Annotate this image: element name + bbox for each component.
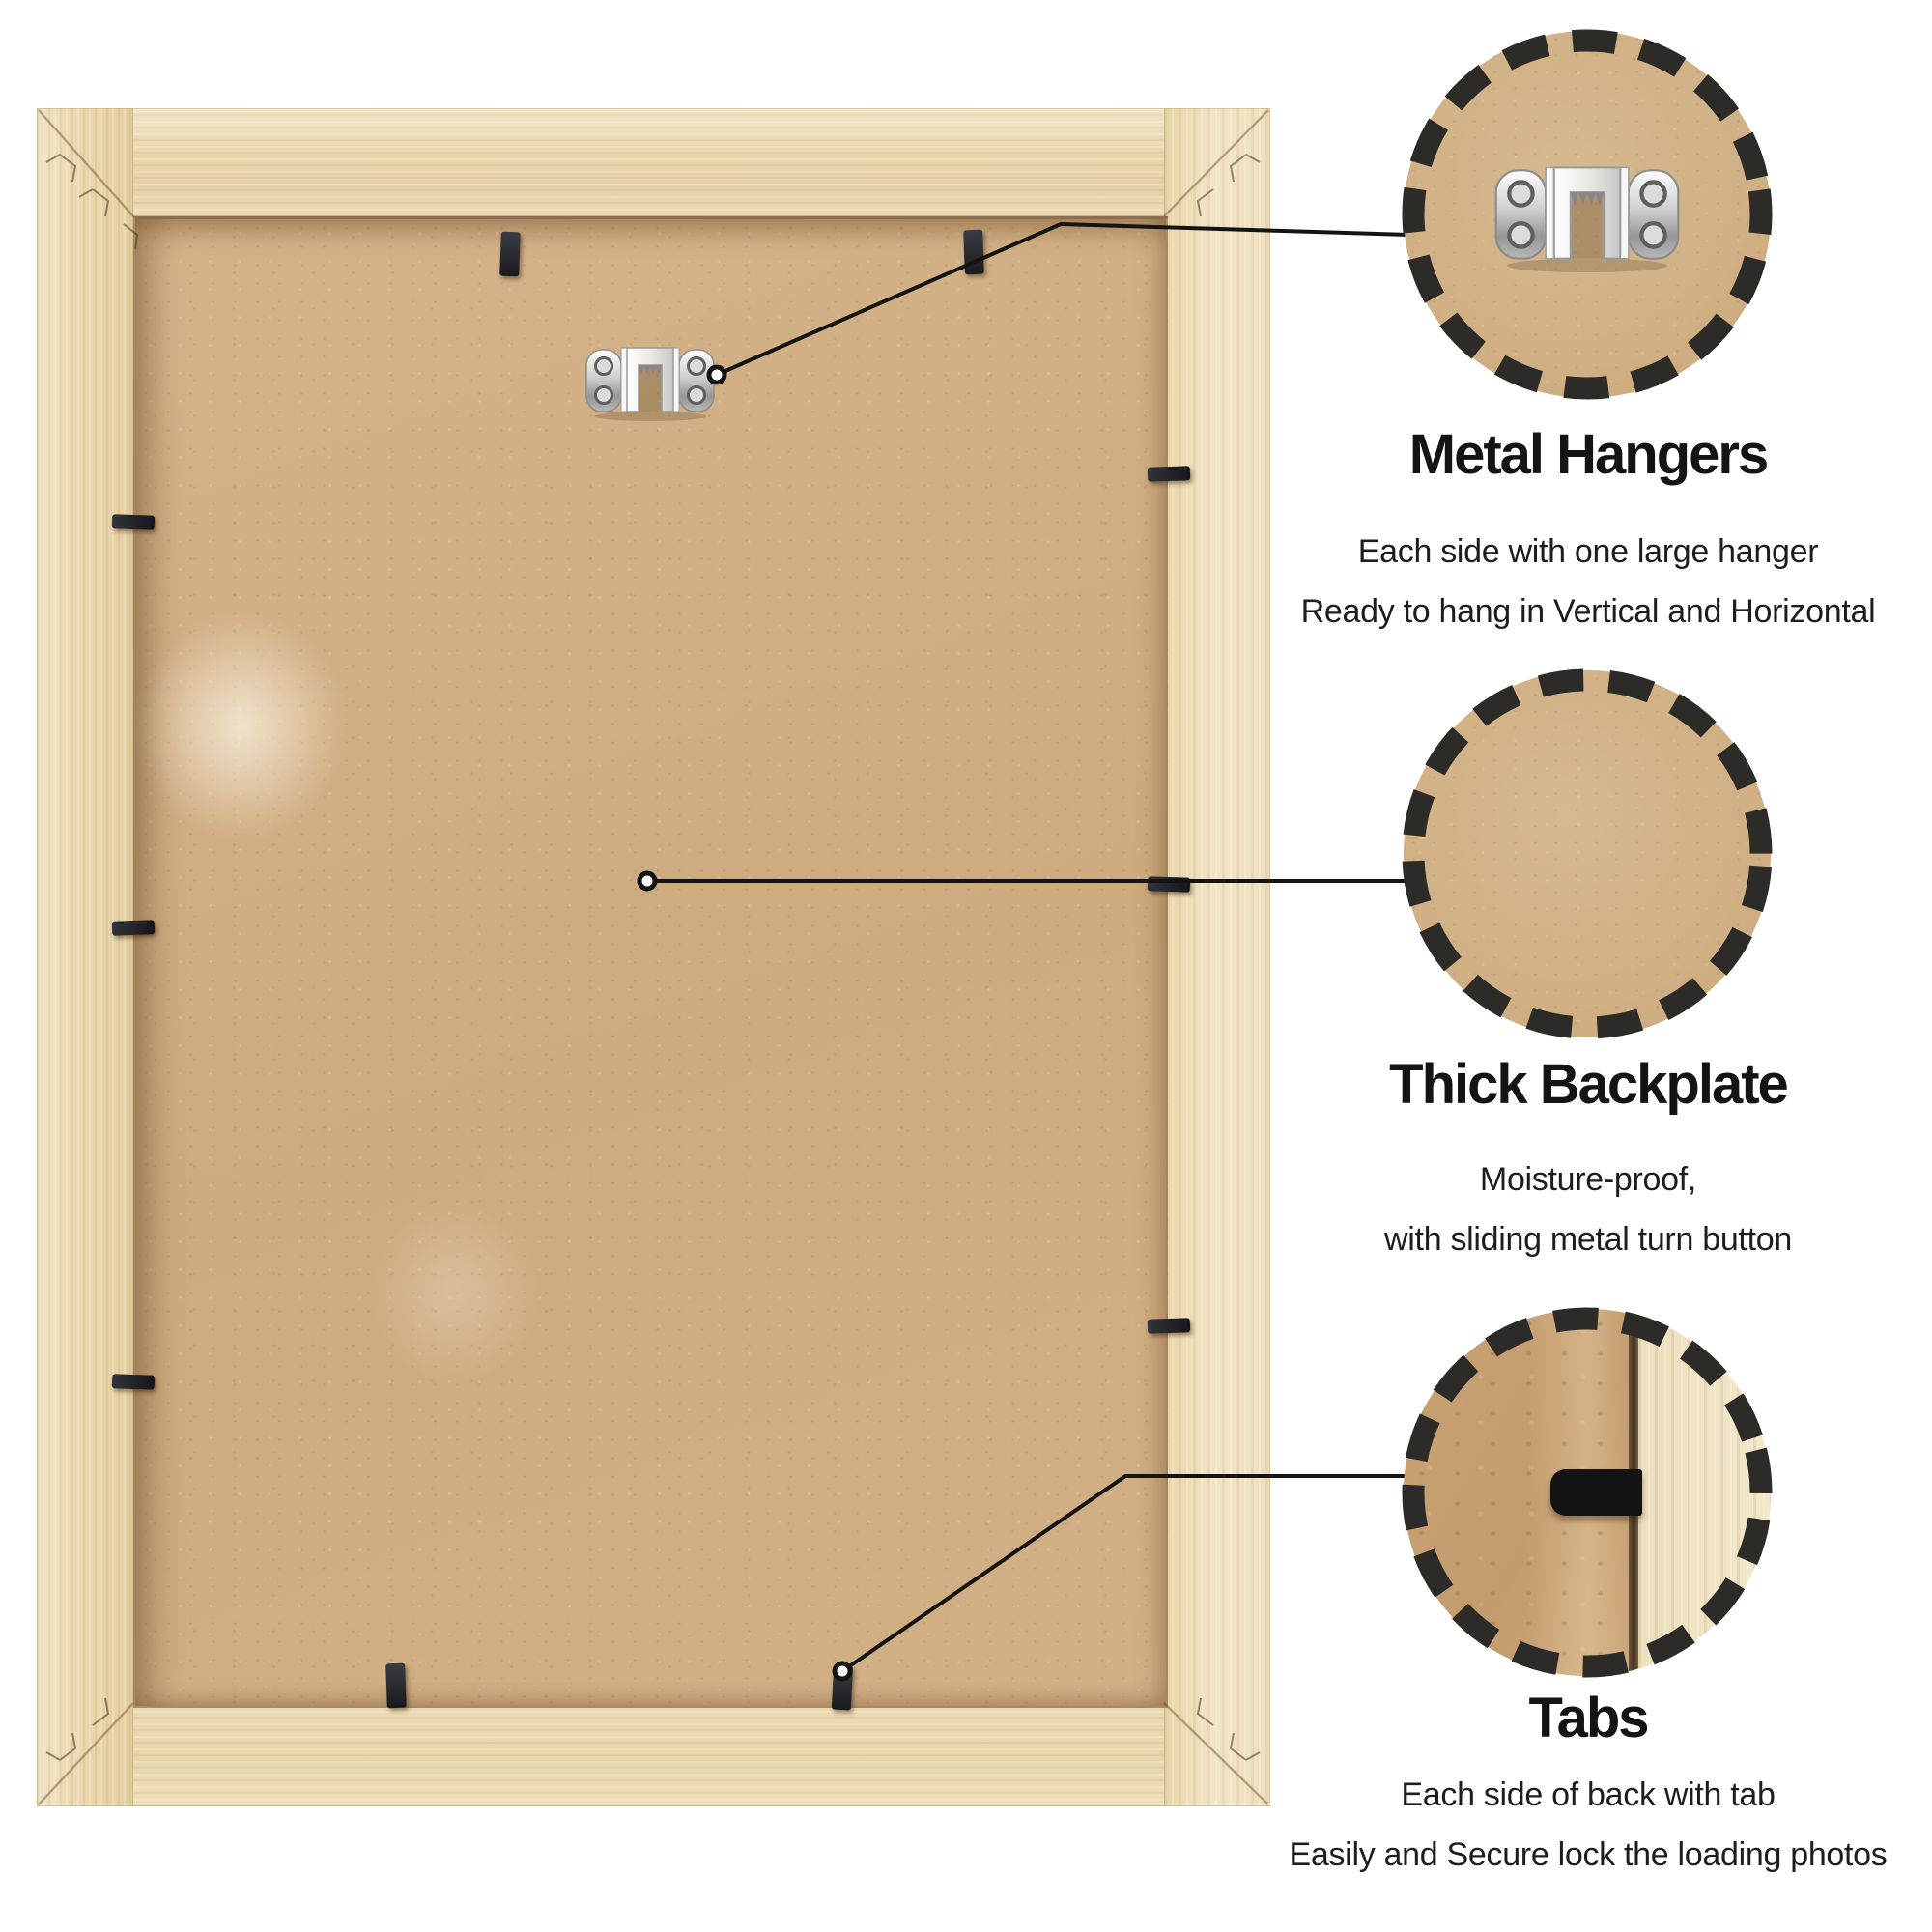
callout-label-thick-backplate: Thick Backplate [1244, 1055, 1932, 1115]
leader-dot-thick-backplate [639, 873, 655, 889]
callout-line: Ready to hang in Vertical and Horizontal [1244, 582, 1932, 641]
product-infographic: Metal Hangers Each side with one large h… [0, 0, 1932, 1932]
miter-joint-lines [39, 110, 1268, 1804]
callout-text-metal-hangers: Each side with one large hanger Ready to… [1244, 522, 1932, 641]
callout-title: Tabs [1244, 1689, 1932, 1748]
retainer-tab-closeup [1550, 1469, 1642, 1516]
sawtooth-hanger-closeup-icon [1491, 156, 1684, 272]
leader-line-tabs [842, 1476, 1410, 1671]
callout-line: Each side with one large hanger [1244, 522, 1932, 582]
callout-text-tabs: Each side of back with tab Easily and Se… [1244, 1765, 1932, 1885]
leader-line-metal-hangers [717, 224, 1408, 375]
v-nail-marks [46, 155, 1260, 1760]
callout-text-thick-backplate: Moisture-proof, with sliding metal turn … [1244, 1150, 1932, 1269]
callout-title: Metal Hangers [1244, 425, 1932, 485]
callout-line: Moisture-proof, [1244, 1150, 1932, 1209]
callout-line: with sliding metal turn button [1244, 1209, 1932, 1269]
leader-dot-metal-hangers [709, 367, 724, 383]
callout-line: Easily and Secure lock the loading photo… [1244, 1825, 1932, 1885]
callout-title: Thick Backplate [1244, 1055, 1932, 1115]
leader-dot-tabs [835, 1663, 850, 1679]
callout-line: Each side of back with tab [1244, 1765, 1932, 1825]
frame-wood-closeup [1638, 1309, 1771, 1676]
callout-label-tabs: Tabs [1244, 1689, 1932, 1748]
callout-label-metal-hangers: Metal Hangers [1244, 425, 1932, 485]
